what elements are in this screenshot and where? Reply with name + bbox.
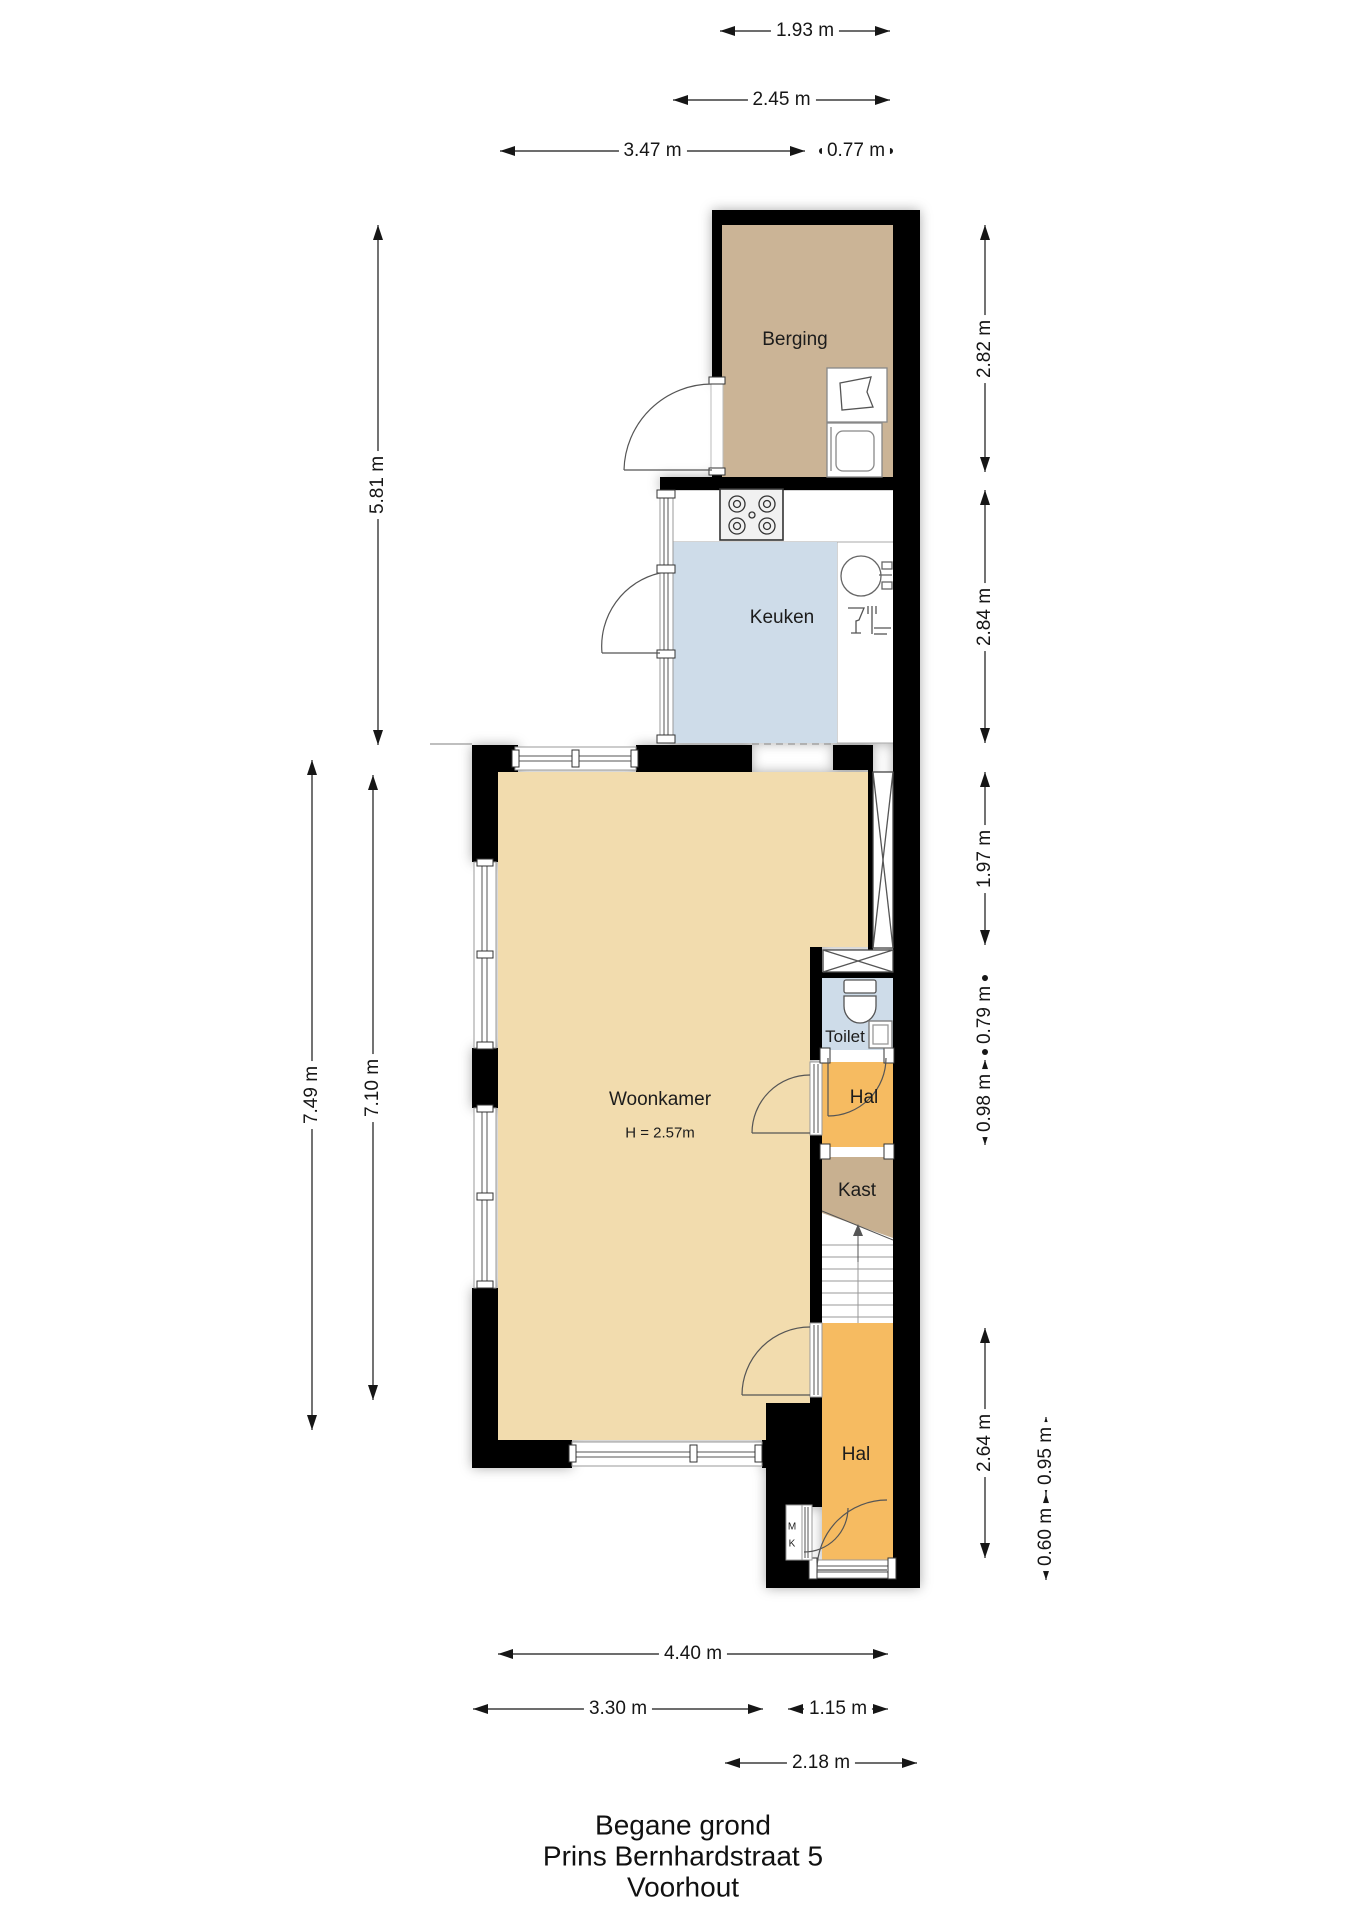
room-label-kast: Kast [838,1180,876,1202]
room-label-berging: Berging [762,329,828,351]
window-left-upper-icon [474,859,496,1049]
dimension-label: 7.10 m [362,1053,384,1121]
floor-plan-drawing [0,0,1358,1920]
boiler-icon [827,368,887,422]
dimension-label: 0.77 m [822,140,890,162]
front-door-frame [809,1558,896,1579]
toilet-sink-icon [869,1021,892,1048]
room-label-hal-bottom: Hal [842,1444,871,1466]
room-label-keuken: Keuken [750,607,814,629]
plan-title: Begane grond Prins Bernhardstraat 5 Voor… [543,1810,823,1903]
window-top-icon [512,747,638,770]
room-label-hal-middle: Hal [850,1087,879,1109]
title-street: Prins Bernhardstraat 5 [543,1841,823,1872]
hal-bottom-door-frame [810,1323,822,1397]
dimension-label: 2.82 m [974,314,996,382]
kitchen-glass-wall-icon [657,490,675,743]
berging-door-icon [624,384,712,470]
kitchen-door-icon [602,573,660,653]
dimension-label: 3.47 m [618,140,686,162]
window-bottom-icon [569,1442,762,1466]
shaft-vertical-icon [873,772,893,948]
window-left-lower-icon [474,1105,496,1288]
stove-icon [720,489,783,540]
floor-plan-page: BergingKeukenWoonkamerH = 2.57mToiletHal… [0,0,1358,1920]
berging-door-frame [709,377,725,475]
room-label-woonkamer: Woonkamer [609,1089,711,1111]
keuken-floor [673,542,837,743]
dimension-label: 2.64 m [974,1409,996,1477]
dimension-label: 4.40 m [659,1643,727,1665]
hal-middle-door-frame [810,1062,822,1135]
dimension-label: 7.49 m [301,1061,323,1129]
title-floor: Begane grond [543,1810,823,1841]
toilet-icon [844,980,876,1023]
dimension-label: 1.15 m [804,1698,872,1720]
hal-bottom-floor [822,1323,893,1563]
room-label-meterkast-k: K [789,1539,796,1550]
shaft-horizontal-icon [823,950,893,972]
dimension-label: 2.45 m [747,89,815,111]
dimension-label: 1.93 m [771,20,839,42]
dimension-label: 0.60 m [1035,1503,1057,1571]
dimension-label: 0.98 m [974,1068,996,1136]
dimension-label: 1.97 m [974,824,996,892]
room-label-woonkamer-height: H = 2.57m [625,1125,695,1142]
washer-icon [827,423,882,477]
room-label-toilet: Toilet [825,1027,865,1047]
room-label-meterkast-m: M [788,1522,796,1533]
dimension-label: 2.18 m [787,1752,855,1774]
dimension-label: 3.30 m [584,1698,652,1720]
dimension-label: 0.95 m [1035,1421,1057,1489]
dimension-label: 5.81 m [367,451,389,519]
dimension-label: 0.79 m [974,981,996,1049]
kitchen-counter-top [673,490,895,542]
title-city: Voorhout [543,1872,823,1903]
dimension-label: 2.84 m [974,582,996,650]
toilet-door-opening [820,1048,894,1063]
